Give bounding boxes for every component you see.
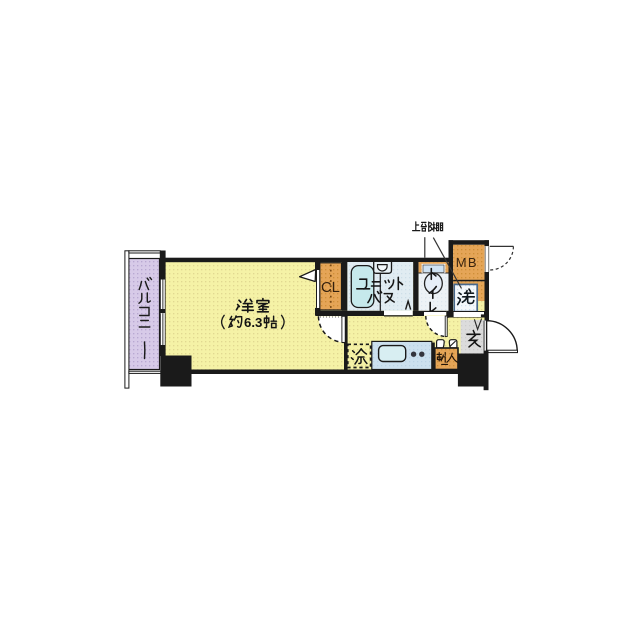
svg-text:CL: CL bbox=[321, 280, 340, 296]
svg-text:MB: MB bbox=[456, 255, 478, 270]
svg-text:6.3: 6.3 bbox=[244, 315, 262, 330]
